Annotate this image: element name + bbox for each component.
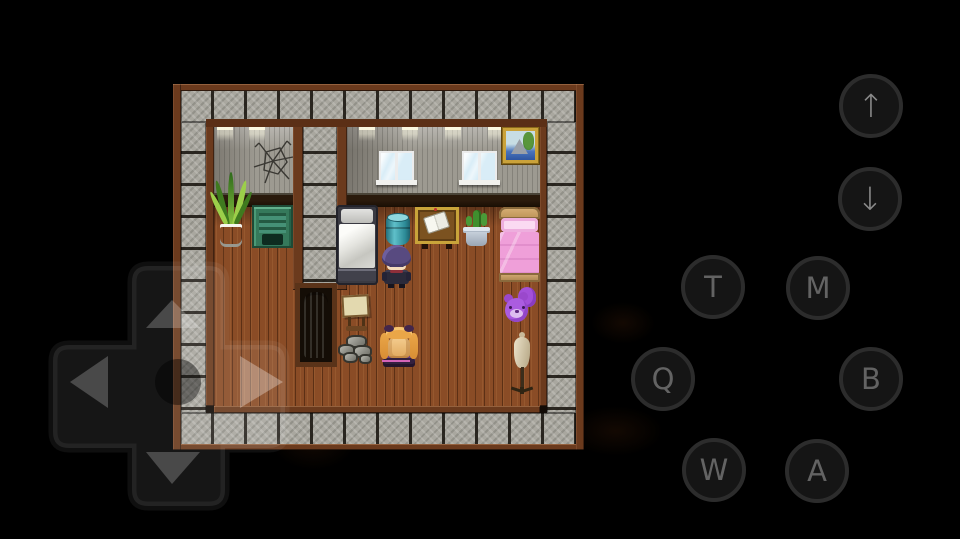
b-button[interactable]: B xyxy=(839,347,903,411)
painting-scene xyxy=(506,131,535,160)
teddy-eye xyxy=(522,306,525,309)
window-mullion xyxy=(478,153,481,180)
player-foot xyxy=(388,284,394,288)
potted-cactus xyxy=(463,210,490,248)
window-sill xyxy=(459,180,500,185)
a-button[interactable]: A xyxy=(785,439,849,503)
landscape-painting xyxy=(502,127,539,164)
dpad-center[interactable] xyxy=(155,359,201,405)
m-button[interactable]: M xyxy=(786,256,850,320)
bed-blanket xyxy=(500,232,539,274)
player-arm xyxy=(382,272,387,281)
wood-trim xyxy=(293,119,303,290)
painting-tree xyxy=(523,132,534,150)
bed-sheet xyxy=(339,224,375,268)
rock-pile xyxy=(338,335,378,365)
emulator-screen: ↑ ↓ T M Q B W A xyxy=(0,0,960,539)
purple-teddy-bear xyxy=(505,287,538,327)
npc-ribbon xyxy=(404,325,414,332)
wood-frame xyxy=(576,84,584,450)
window-mullion xyxy=(395,153,398,180)
easel-desk xyxy=(341,293,372,333)
button-label: A xyxy=(807,454,827,488)
floor-stain xyxy=(591,302,655,344)
button-label: W xyxy=(700,453,729,487)
barrel-band xyxy=(386,227,410,229)
mannequin-torso xyxy=(514,337,530,368)
snake-plant xyxy=(216,172,246,247)
up-arrow-button[interactable]: ↑ xyxy=(839,74,903,138)
bed-pillow xyxy=(501,218,538,232)
wood-frame xyxy=(173,84,584,91)
button-label: Q xyxy=(652,362,675,396)
player-arm xyxy=(406,272,411,281)
bedroll-recess xyxy=(295,283,337,367)
t-button[interactable]: T xyxy=(681,255,745,319)
mannequin-pole xyxy=(521,367,524,387)
stone-tile-border xyxy=(547,122,576,413)
teal-barrel xyxy=(386,213,410,247)
q-button[interactable]: Q xyxy=(631,347,695,411)
green-locker xyxy=(252,205,293,248)
ceiling-light xyxy=(359,127,375,141)
table-leg xyxy=(446,244,452,249)
cactus-arm xyxy=(481,213,487,226)
teddy-nose xyxy=(515,310,519,313)
easel-base xyxy=(346,326,367,331)
stool-trim xyxy=(382,360,410,362)
ceiling-light xyxy=(402,127,418,141)
npc-back xyxy=(388,337,410,358)
wall-crack xyxy=(251,137,295,185)
window-sill xyxy=(376,180,417,185)
button-label: T xyxy=(704,270,722,304)
button-label: M xyxy=(805,271,830,305)
bed-pillow xyxy=(341,209,373,223)
button-label: ↓ xyxy=(857,180,884,218)
book-table xyxy=(415,207,459,250)
down-arrow-button[interactable]: ↓ xyxy=(838,167,902,231)
player-scarf xyxy=(390,270,403,273)
ceiling-light xyxy=(217,127,233,141)
locker-slats xyxy=(259,213,286,233)
white-bedroll xyxy=(304,292,328,358)
button-label: ↑ xyxy=(858,87,885,125)
pot-body xyxy=(466,232,487,246)
mannequin-foot xyxy=(523,387,533,393)
player-character[interactable] xyxy=(380,245,413,288)
mannequin-foot xyxy=(520,387,524,394)
barrel-lid xyxy=(387,213,409,222)
button-label: B xyxy=(861,362,881,396)
plant-pot xyxy=(220,224,242,247)
locker-opening xyxy=(262,234,283,245)
book-bookmark xyxy=(434,208,437,211)
bed-footboard xyxy=(338,269,376,281)
player-hair xyxy=(382,245,411,267)
pink-bed xyxy=(497,207,542,283)
teddy-eye xyxy=(509,306,512,309)
grey-bed xyxy=(336,205,378,285)
easel-canvas xyxy=(341,294,369,317)
rock xyxy=(343,352,358,363)
wood-beam xyxy=(206,119,547,127)
w-button[interactable]: W xyxy=(682,438,746,502)
rock xyxy=(359,354,372,364)
stone-tile-wall xyxy=(303,122,337,290)
bed-footboard xyxy=(499,273,540,282)
ceiling-light xyxy=(445,127,461,141)
player-foot xyxy=(399,284,405,288)
dress-mannequin xyxy=(508,332,536,397)
npc-ribbon xyxy=(384,325,394,332)
table-leg xyxy=(422,244,428,249)
window xyxy=(379,151,414,182)
stone-tile-border xyxy=(181,90,576,122)
dpad[interactable] xyxy=(45,258,293,514)
npc-sitting-character[interactable] xyxy=(380,325,418,369)
cactus-arm xyxy=(466,216,472,226)
window xyxy=(462,151,497,182)
